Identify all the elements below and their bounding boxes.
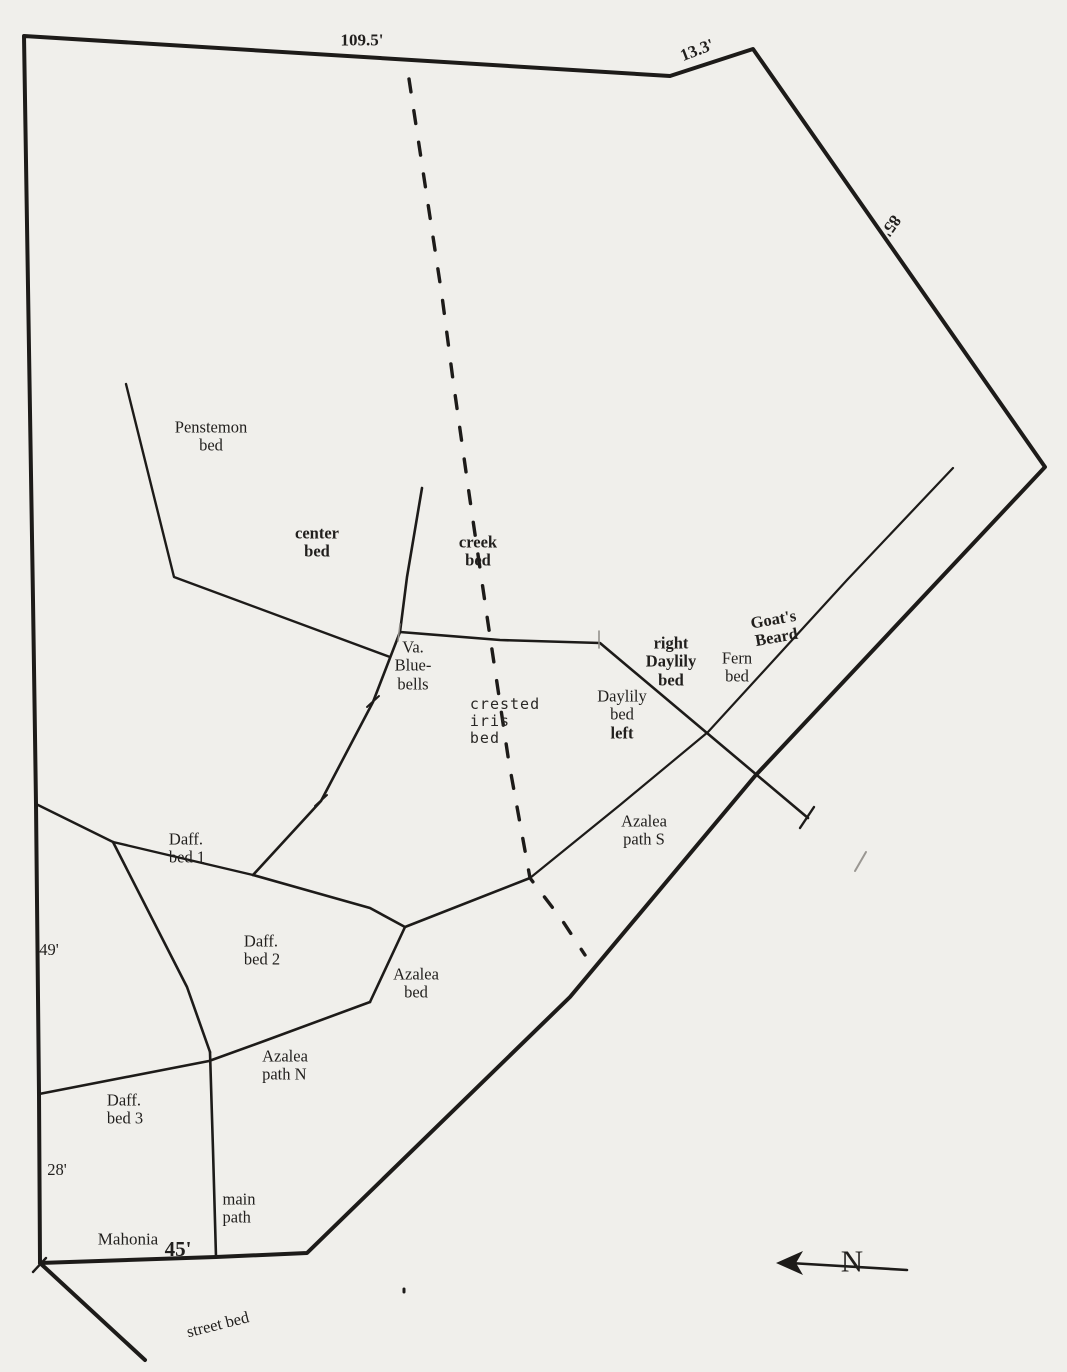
dim-13-3: 13.3' xyxy=(677,35,716,65)
labels-layer: 109.5'13.3'85'Penstemonbedcenterbedcreek… xyxy=(0,0,1067,1372)
right-daylily-bed-label: rightDaylilybed xyxy=(646,634,696,689)
daff-bed-2-label-line-0: Daff. xyxy=(244,933,280,951)
north-label: N xyxy=(841,1245,863,1280)
dim-49: 49' xyxy=(39,941,58,959)
dim-49-line-0: 49' xyxy=(39,941,58,959)
va-bluebells-label-line-1: Blue- xyxy=(395,657,432,675)
daylily-bed-left-label-line-0: Daylily xyxy=(597,687,647,705)
crested-iris-bed-label-line-2: bed xyxy=(470,729,540,746)
daff-bed-1-label: Daff.bed 1 xyxy=(169,831,205,868)
penstemon-bed-label: Penstemonbed xyxy=(175,419,247,456)
daylily-bed-left-label: Daylilybedleft xyxy=(597,687,647,742)
azalea-path-n-label: Azaleapath N xyxy=(262,1048,308,1085)
daff-bed-2-label: Daff.bed 2 xyxy=(244,933,280,970)
dim-28-line-0: 28' xyxy=(47,1161,66,1179)
mahonia-label-line-0: Mahonia xyxy=(98,1229,158,1248)
crested-iris-bed-label-line-0: crested xyxy=(470,696,540,713)
va-bluebells-label-line-2: bells xyxy=(395,675,432,693)
va-bluebells-label-line-0: Va. xyxy=(395,638,432,656)
dim-109-5: 109.5' xyxy=(341,30,384,49)
right-daylily-bed-label-line-1: Daylily xyxy=(646,653,696,671)
fern-bed-label: Fernbed xyxy=(722,650,752,687)
fern-bed-label-line-0: Fern xyxy=(722,650,752,668)
main-path-label-line-1: path xyxy=(223,1209,256,1227)
azalea-path-n-label-line-0: Azalea xyxy=(262,1048,308,1066)
dim-109-5-line-0: 109.5' xyxy=(341,30,384,49)
dim-45-line-0: 45' xyxy=(165,1238,192,1262)
daylily-bed-left-label-line-1: bed xyxy=(597,706,647,724)
daff-bed-1-label-line-0: Daff. xyxy=(169,831,205,849)
crested-iris-bed-label-line-1: iris xyxy=(470,713,540,730)
main-path-label: mainpath xyxy=(223,1191,256,1228)
creek-bed-label: creekbed xyxy=(459,534,497,571)
dim-45: 45' xyxy=(165,1238,192,1262)
creek-bed-label-line-0: creek xyxy=(459,534,497,552)
street-bed-label-line-0: street bed xyxy=(185,1308,251,1341)
daff-bed-3-label-line-0: Daff. xyxy=(107,1092,143,1110)
center-bed-label: centerbed xyxy=(295,525,339,562)
azalea-bed-label: Azaleabed xyxy=(393,966,439,1003)
center-bed-label-line-0: center xyxy=(295,525,339,543)
azalea-bed-label-line-0: Azalea xyxy=(393,966,439,984)
penstemon-bed-label-line-1: bed xyxy=(175,437,247,455)
north-label-line-0: N xyxy=(841,1245,863,1280)
dim-85-line-0: 85' xyxy=(877,212,905,241)
right-daylily-bed-label-line-0: right xyxy=(646,634,696,652)
right-daylily-bed-label-line-2: bed xyxy=(646,671,696,689)
center-bed-label-line-1: bed xyxy=(295,543,339,561)
street-bed-label: street bed xyxy=(185,1308,251,1341)
dim-28: 28' xyxy=(47,1161,66,1179)
penstemon-bed-label-line-0: Penstemon xyxy=(175,419,247,437)
crested-iris-bed-label: crestedirisbed xyxy=(470,696,540,746)
mahonia-label: Mahonia xyxy=(98,1229,158,1248)
daff-bed-3-label: Daff.bed 3 xyxy=(107,1092,143,1129)
goats-beard-label: Goat'sBeard xyxy=(749,607,801,651)
azalea-path-s-label-line-0: Azalea xyxy=(621,813,667,831)
azalea-bed-label-line-1: bed xyxy=(393,984,439,1002)
fern-bed-label-line-1: bed xyxy=(722,668,752,686)
azalea-path-n-label-line-1: path N xyxy=(262,1066,308,1084)
daff-bed-2-label-line-1: bed 2 xyxy=(244,951,280,969)
daff-bed-3-label-line-1: bed 3 xyxy=(107,1110,143,1128)
azalea-path-s-label-line-1: path S xyxy=(621,831,667,849)
main-path-label-line-0: main xyxy=(223,1191,256,1209)
daff-bed-1-label-line-1: bed 1 xyxy=(169,849,205,867)
dim-13-3-line-0: 13.3' xyxy=(677,35,716,65)
creek-bed-label-line-1: bed xyxy=(459,552,497,570)
azalea-path-s-label: Azaleapath S xyxy=(621,813,667,850)
dim-85: 85' xyxy=(877,212,905,241)
daylily-bed-left-label-line-2: left xyxy=(597,724,647,742)
va-bluebells-label: Va.Blue-bells xyxy=(395,638,432,693)
garden-map-page: 109.5'13.3'85'Penstemonbedcenterbedcreek… xyxy=(0,0,1067,1372)
